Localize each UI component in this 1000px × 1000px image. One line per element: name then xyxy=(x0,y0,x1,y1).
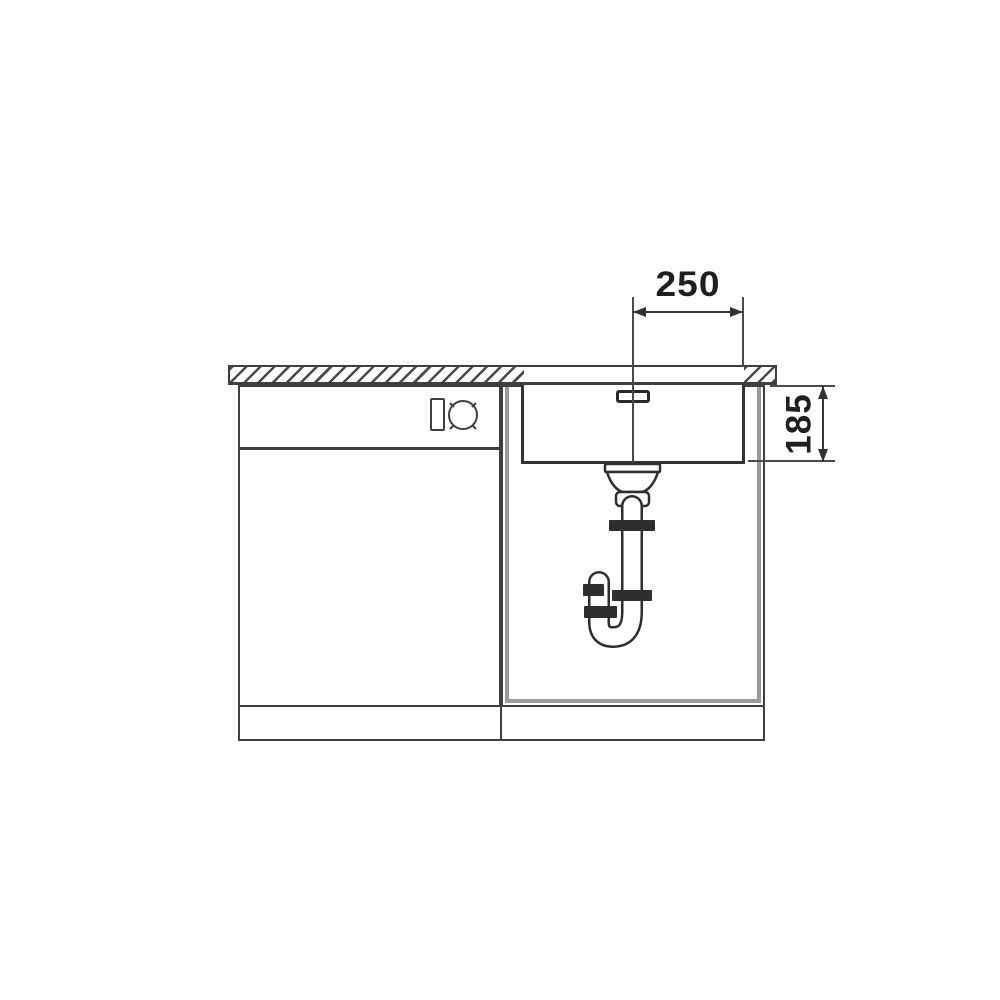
dim-250-arrow-left-icon xyxy=(633,307,646,317)
left-base-cabinet xyxy=(238,385,501,707)
control-knob-icon xyxy=(448,400,478,430)
control-switch-icon xyxy=(430,398,445,431)
dim-185-label: 185 xyxy=(760,364,840,484)
drawer-divider-line xyxy=(240,447,499,450)
drain-centerline xyxy=(632,297,634,467)
technical-drawing-canvas: 250 185 xyxy=(0,0,1000,1000)
plinth xyxy=(238,705,765,741)
countertop xyxy=(228,365,777,385)
dim-250-label: 250 xyxy=(630,264,747,306)
plinth-divider-line xyxy=(500,707,502,739)
dim-250-extension-line xyxy=(742,297,744,367)
dim-250-line xyxy=(633,311,743,313)
countertop-hatch-left xyxy=(230,367,524,382)
